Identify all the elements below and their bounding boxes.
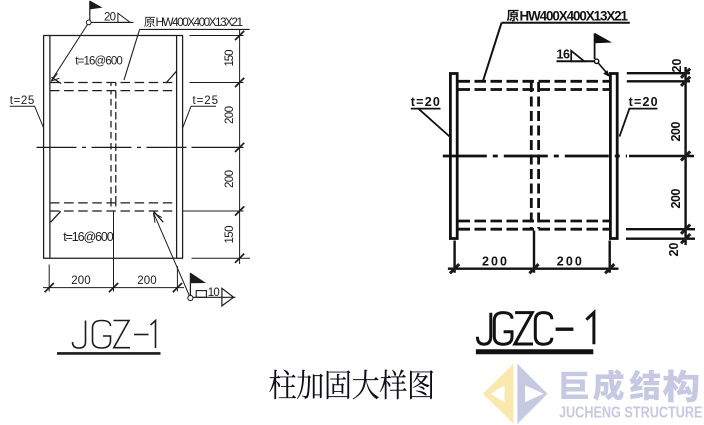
svg-text:200: 200 [482,255,507,269]
svg-text:200: 200 [557,255,582,269]
svg-text:t=16@600: t=16@600 [75,56,123,68]
svg-text:HW400X400X13X21: HW400X400X13X21 [156,15,244,29]
svg-text:150: 150 [224,50,236,67]
svg-text:200: 200 [224,106,236,124]
svg-text:HW400X400X13X21: HW400X400X13X21 [520,8,629,23]
svg-text:150: 150 [224,226,236,244]
svg-text:20: 20 [104,12,116,24]
svg-text:200: 200 [669,121,683,141]
svg-text:200: 200 [137,275,157,287]
svg-text:200: 200 [224,170,236,188]
svg-text:20: 20 [670,58,684,72]
svg-text:JUCHENG STRUCTURE: JUCHENG STRUCTURE [559,404,703,421]
svg-text:200: 200 [669,188,683,208]
svg-text:t=25: t=25 [193,95,219,107]
svg-text:20: 20 [667,242,681,256]
svg-text:200: 200 [71,275,91,287]
svg-text:16: 16 [557,48,571,62]
svg-text:t=16@600: t=16@600 [63,230,114,244]
svg-text:t=25: t=25 [10,95,35,107]
